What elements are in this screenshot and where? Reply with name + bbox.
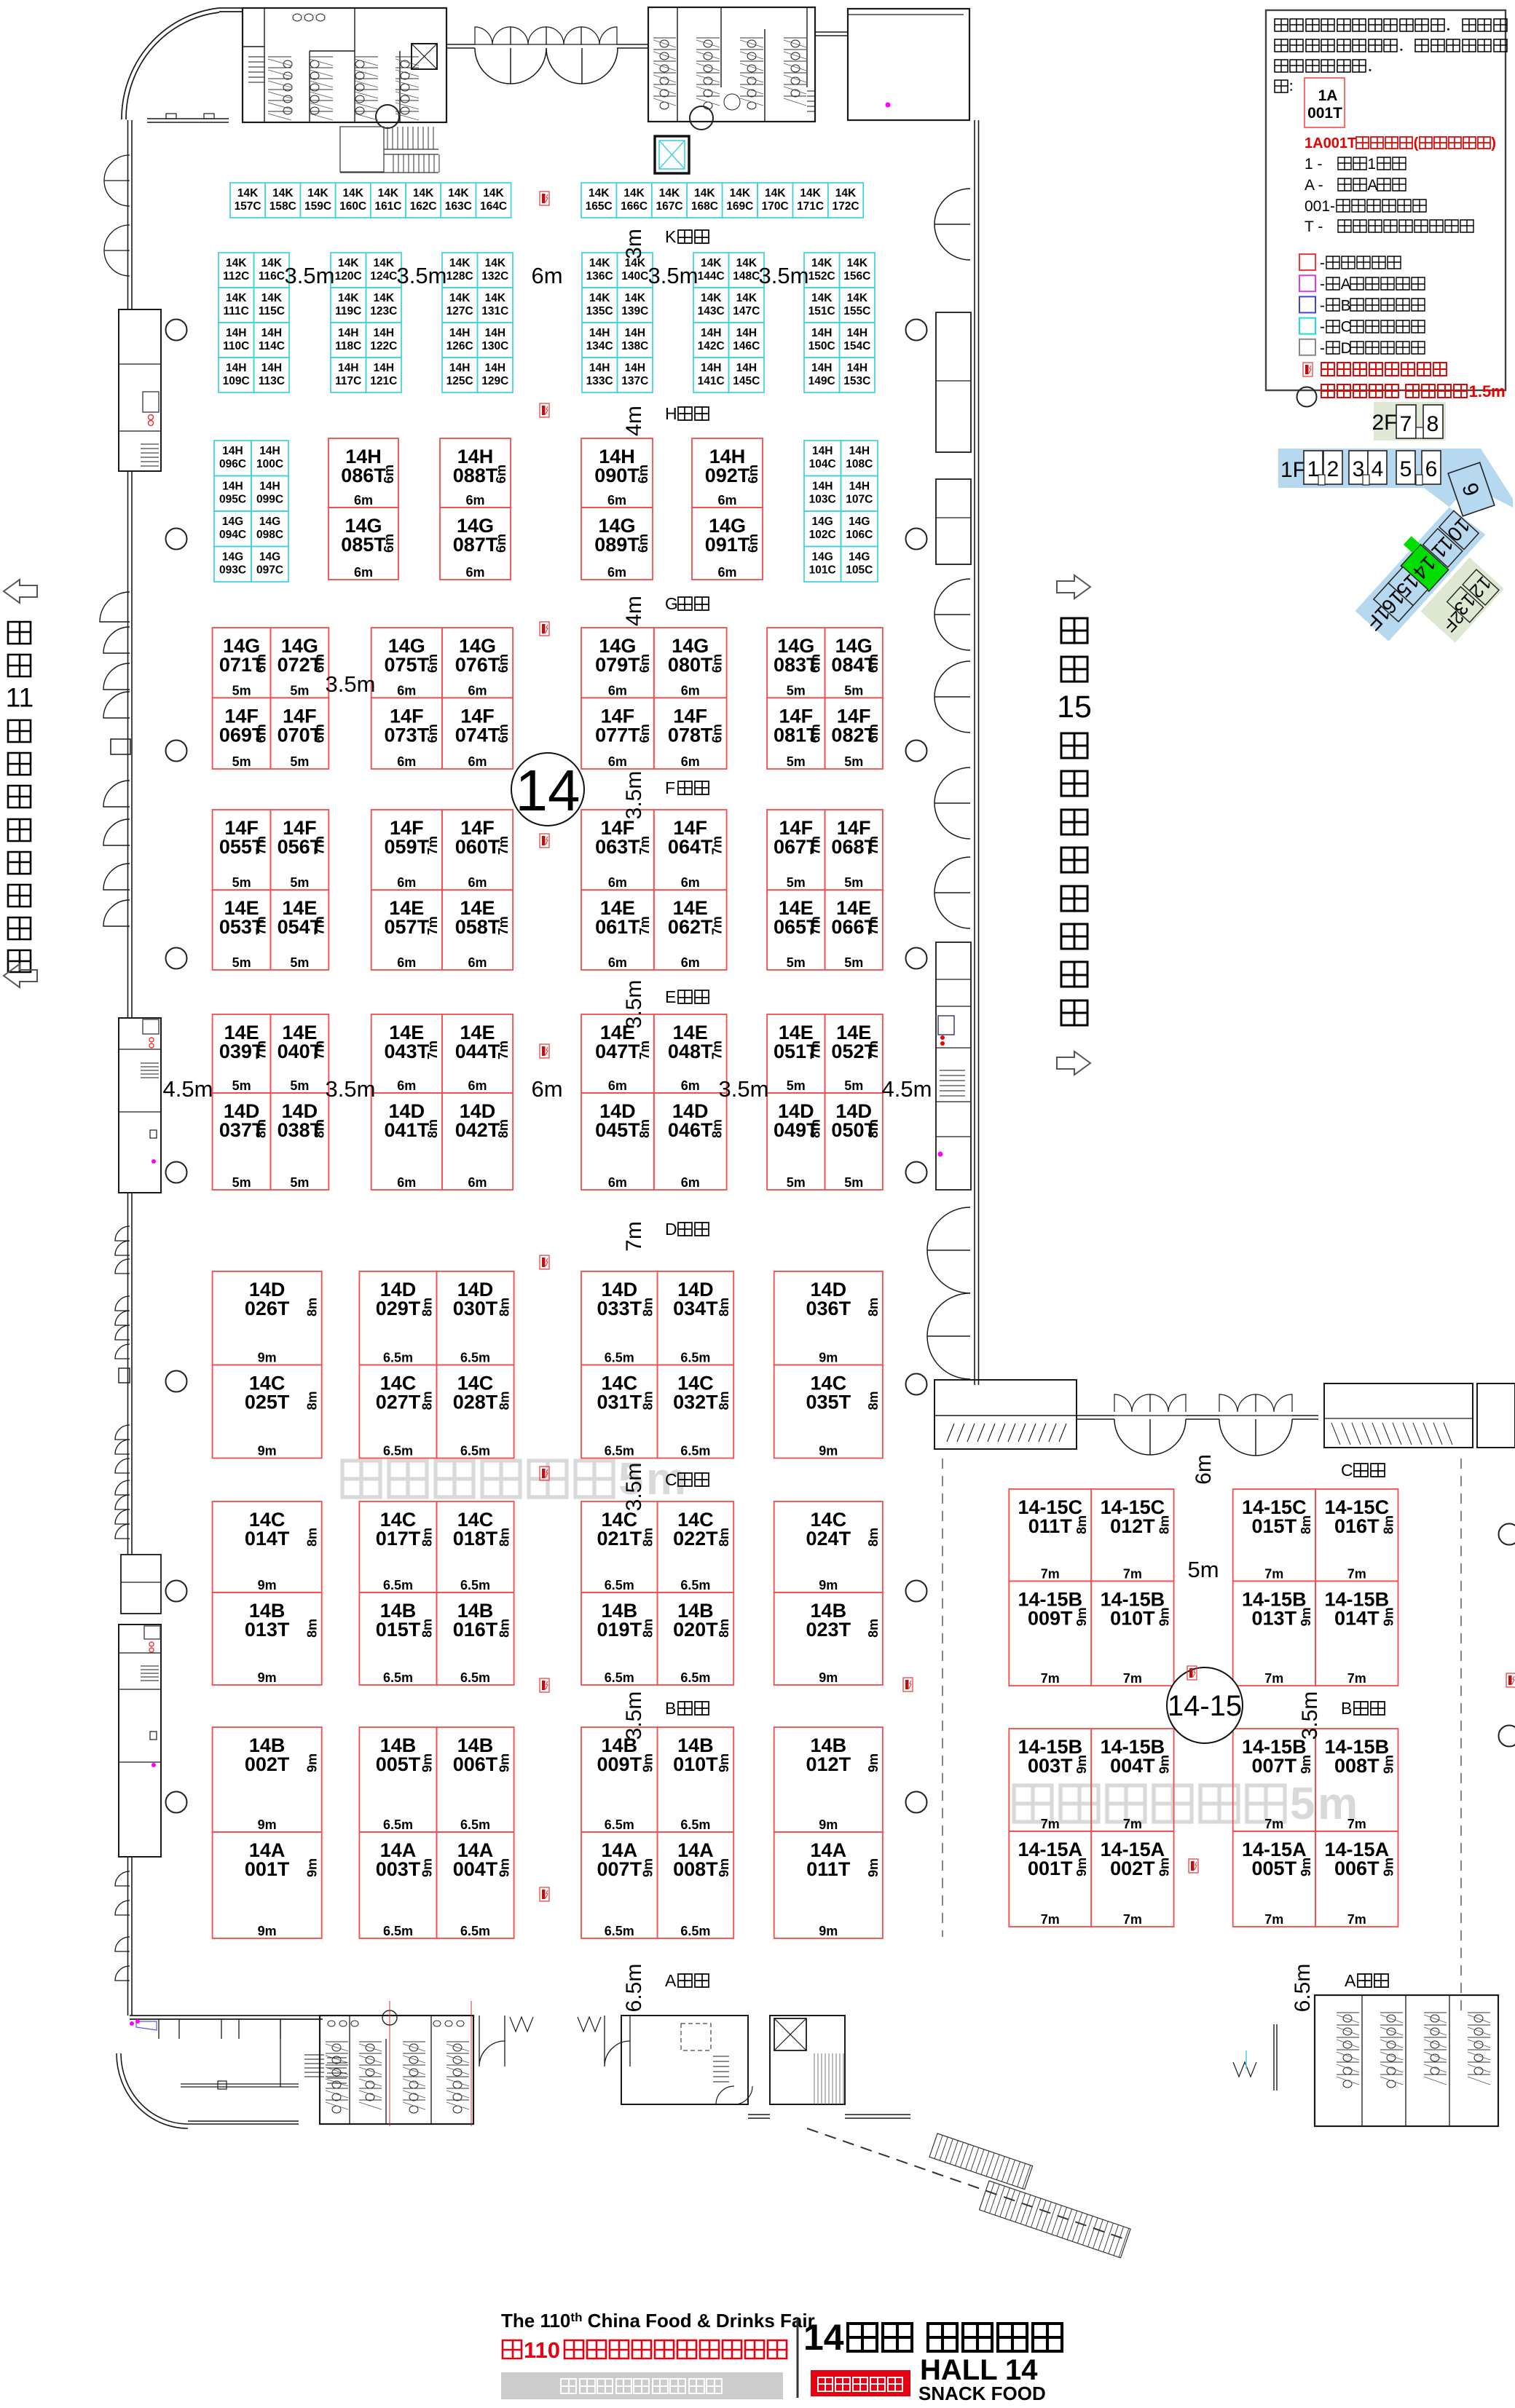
svg-text:5m: 5m <box>232 754 251 769</box>
svg-text:6.5m: 6.5m <box>680 1670 710 1685</box>
svg-text:14H: 14H <box>812 445 833 457</box>
svg-text:015T: 015T <box>376 1619 421 1641</box>
svg-text:): ) <box>1491 135 1496 151</box>
svg-text:3.5m: 3.5m <box>326 1076 376 1102</box>
svg-text:6.5m: 6.5m <box>605 1817 634 1832</box>
svg-text:161C: 161C <box>374 200 401 213</box>
svg-text:011T: 011T <box>1028 1515 1073 1537</box>
svg-text:1A: 1A <box>1318 87 1338 104</box>
svg-text:148C: 148C <box>733 270 760 283</box>
svg-text:150C: 150C <box>808 340 835 352</box>
svg-text:8m: 8m <box>420 1391 435 1410</box>
svg-text:9m: 9m <box>420 1753 435 1772</box>
svg-text:7m: 7m <box>637 916 652 935</box>
svg-text:3.5m: 3.5m <box>622 771 646 820</box>
svg-text:005T: 005T <box>376 1753 421 1775</box>
svg-text:8m: 8m <box>1157 1515 1172 1534</box>
svg-text:035T: 035T <box>806 1391 851 1413</box>
svg-text:7m: 7m <box>1123 1566 1142 1581</box>
svg-text:6.5m: 6.5m <box>605 1924 634 1938</box>
svg-text:6m: 6m <box>866 724 881 743</box>
svg-text:6.5m: 6.5m <box>605 1351 634 1365</box>
svg-text:14K: 14K <box>730 187 751 200</box>
svg-text:096C: 096C <box>219 458 246 470</box>
svg-text:151C: 151C <box>808 305 835 317</box>
svg-text:5: 5 <box>1290 1779 1315 1829</box>
svg-text:6m: 6m <box>681 683 700 698</box>
svg-text:091T: 091T <box>705 534 750 556</box>
svg-text:6m: 6m <box>382 465 396 483</box>
svg-text:8m: 8m <box>808 1119 823 1138</box>
svg-text:9m: 9m <box>1382 1858 1396 1876</box>
svg-text:009T: 009T <box>597 1753 642 1775</box>
svg-text:4: 4 <box>1372 457 1384 481</box>
svg-text:5m: 5m <box>844 955 863 970</box>
svg-text:001T: 001T <box>1307 105 1342 122</box>
svg-text:079T: 079T <box>595 654 640 676</box>
svg-text:6m: 6m <box>254 724 269 743</box>
svg-text:7m: 7m <box>312 916 326 935</box>
svg-text:7m: 7m <box>1264 1671 1283 1686</box>
svg-text:8m: 8m <box>866 1391 881 1410</box>
svg-text:-: - <box>1320 340 1325 357</box>
svg-text:6m: 6m <box>636 465 650 483</box>
svg-text:093C: 093C <box>219 564 246 577</box>
svg-text:7m: 7m <box>637 836 652 855</box>
svg-text:1A001T: 1A001T <box>1305 135 1356 151</box>
svg-text:8m: 8m <box>641 1619 656 1638</box>
svg-text:14G: 14G <box>849 516 870 528</box>
svg-text:001T: 001T <box>1028 1858 1073 1879</box>
svg-text:14K: 14K <box>589 257 610 269</box>
svg-text:004T: 004T <box>453 1858 498 1880</box>
svg-text:100C: 100C <box>256 458 283 470</box>
svg-text:9m: 9m <box>819 1817 838 1832</box>
svg-text:6.5m: 6.5m <box>460 1924 490 1938</box>
svg-text:6m: 6m <box>608 1175 627 1190</box>
svg-text:8m: 8m <box>496 1119 511 1138</box>
svg-text:113C: 113C <box>259 375 285 387</box>
svg-text:106C: 106C <box>846 529 873 541</box>
svg-text:7m: 7m <box>710 836 725 855</box>
svg-text:007T: 007T <box>597 1858 642 1880</box>
svg-text:6m: 6m <box>312 724 326 743</box>
svg-text:6.5m: 6.5m <box>605 1578 634 1592</box>
svg-text:048T: 048T <box>668 1041 713 1062</box>
svg-text:6.5m: 6.5m <box>383 1351 413 1365</box>
svg-text:010T: 010T <box>673 1753 718 1775</box>
svg-text:9m: 9m <box>497 1858 512 1877</box>
svg-text:9m: 9m <box>819 1578 838 1592</box>
svg-text:14H: 14H <box>485 327 505 339</box>
svg-text:6m: 6m <box>468 754 487 769</box>
svg-text:1F: 1F <box>1280 458 1306 482</box>
svg-text:6.5m: 6.5m <box>383 1578 413 1592</box>
svg-text:14H: 14H <box>259 481 280 493</box>
svg-text:167C: 167C <box>656 200 682 213</box>
svg-text:006T: 006T <box>1334 1858 1380 1879</box>
svg-text:6m: 6m <box>496 654 511 673</box>
svg-text:031T: 031T <box>597 1391 642 1413</box>
svg-text:6m: 6m <box>681 1078 700 1093</box>
svg-text:14K: 14K <box>272 187 294 200</box>
svg-text:159C: 159C <box>304 200 331 213</box>
svg-text:5m: 5m <box>787 955 806 970</box>
svg-text:3.5m: 3.5m <box>326 671 376 697</box>
svg-text:6m: 6m <box>746 465 760 483</box>
svg-text:A: A <box>665 1971 677 1990</box>
svg-text:14K: 14K <box>811 292 833 304</box>
svg-text:14K: 14K <box>659 187 680 200</box>
svg-text:7m: 7m <box>637 1041 652 1059</box>
svg-text:8m: 8m <box>710 1119 725 1138</box>
svg-text:5m: 5m <box>290 875 309 890</box>
svg-text:9m: 9m <box>1299 1755 1313 1774</box>
svg-text:5m: 5m <box>232 1175 251 1190</box>
svg-text:118C: 118C <box>335 340 361 352</box>
svg-text:11: 11 <box>6 683 34 713</box>
svg-text:9m: 9m <box>717 1858 731 1877</box>
svg-text:14: 14 <box>516 758 581 823</box>
svg-text:14H: 14H <box>847 362 867 374</box>
svg-text:078T: 078T <box>668 724 713 746</box>
svg-text:001T: 001T <box>245 1858 290 1880</box>
svg-text:132C: 132C <box>481 270 508 283</box>
svg-text:110: 110 <box>524 2337 560 2363</box>
svg-text:7m: 7m <box>622 1221 646 1252</box>
svg-text:117C: 117C <box>335 375 361 387</box>
svg-text:9m: 9m <box>819 1670 838 1685</box>
svg-text:14K: 14K <box>589 187 610 200</box>
svg-text:6m: 6m <box>710 654 725 673</box>
svg-text:6m: 6m <box>468 955 487 970</box>
svg-text:6: 6 <box>1425 457 1438 481</box>
svg-text:023T: 023T <box>806 1619 851 1641</box>
svg-text:7m: 7m <box>1041 1817 1060 1831</box>
svg-text:170C: 170C <box>762 200 789 213</box>
svg-text:016T: 016T <box>453 1619 498 1641</box>
svg-text:014T: 014T <box>245 1528 290 1550</box>
svg-text:129C: 129C <box>481 375 508 387</box>
svg-text:8m: 8m <box>717 1298 731 1316</box>
svg-text:6m: 6m <box>425 724 440 743</box>
svg-text:166C: 166C <box>621 200 648 213</box>
svg-text:6m: 6m <box>681 1175 700 1190</box>
svg-text:14K: 14K <box>237 187 259 200</box>
svg-text:3.5m: 3.5m <box>622 980 646 1029</box>
svg-text:6m: 6m <box>354 493 373 508</box>
svg-text:009T: 009T <box>1028 1607 1073 1629</box>
svg-text:109C: 109C <box>223 375 250 387</box>
svg-text:9m: 9m <box>258 1670 277 1685</box>
svg-text:011T: 011T <box>806 1858 851 1880</box>
svg-text:7m: 7m <box>312 836 326 855</box>
svg-text:9m: 9m <box>1074 1858 1089 1876</box>
svg-text:14G: 14G <box>849 551 870 564</box>
svg-text:3m: 3m <box>622 229 646 259</box>
svg-text:14K: 14K <box>485 257 506 269</box>
svg-text:6.5m: 6.5m <box>680 1578 710 1592</box>
svg-text:152C: 152C <box>808 270 835 283</box>
svg-text:8m: 8m <box>1074 1515 1089 1534</box>
svg-text:7m: 7m <box>808 916 823 935</box>
svg-text:115C: 115C <box>259 305 285 317</box>
svg-text:8m: 8m <box>866 1298 881 1316</box>
svg-text:15: 15 <box>1057 690 1092 725</box>
svg-text:6m: 6m <box>608 875 627 890</box>
svg-text:013T: 013T <box>245 1619 290 1641</box>
svg-text:3.5m: 3.5m <box>759 263 809 288</box>
svg-text:14K: 14K <box>261 292 283 304</box>
svg-text:5m: 5m <box>290 754 309 769</box>
svg-text:134C: 134C <box>586 340 613 352</box>
svg-text:6m: 6m <box>607 565 626 580</box>
svg-text:116C: 116C <box>259 270 285 283</box>
svg-text:14K: 14K <box>485 292 506 304</box>
svg-text:7m: 7m <box>496 836 511 855</box>
svg-text:6m: 6m <box>746 534 760 553</box>
svg-text:B: B <box>1341 297 1351 314</box>
svg-text:156C: 156C <box>843 270 870 283</box>
svg-text:114C: 114C <box>259 340 285 352</box>
svg-text:130C: 130C <box>481 340 508 352</box>
svg-text:5m: 5m <box>232 683 251 698</box>
svg-text:14H: 14H <box>374 362 394 374</box>
svg-text:14K: 14K <box>623 187 645 200</box>
svg-text:6m: 6m <box>681 955 700 970</box>
svg-text:6.5m: 6.5m <box>383 1924 413 1938</box>
svg-text:5m: 5m <box>787 754 806 769</box>
svg-text:029T: 029T <box>376 1298 421 1319</box>
svg-text:108C: 108C <box>846 458 873 470</box>
svg-text:6m: 6m <box>608 754 627 769</box>
svg-text:153C: 153C <box>843 375 870 387</box>
svg-text:026T: 026T <box>245 1298 290 1319</box>
svg-text:8m: 8m <box>305 1619 320 1638</box>
svg-text:14H: 14H <box>849 445 870 457</box>
svg-text:7m: 7m <box>1041 1912 1060 1927</box>
svg-text:14H: 14H <box>812 481 833 493</box>
svg-text:3.5m: 3.5m <box>285 263 335 288</box>
svg-text:092T: 092T <box>705 465 750 486</box>
svg-text:144C: 144C <box>698 270 725 283</box>
svg-text:6m: 6m <box>397 1078 416 1093</box>
svg-text:002T: 002T <box>1110 1858 1155 1879</box>
svg-text:6m: 6m <box>465 565 484 580</box>
svg-text:098C: 098C <box>256 529 283 541</box>
svg-text:4m: 4m <box>622 406 646 436</box>
svg-text:6.5m: 6.5m <box>460 1670 490 1685</box>
svg-text:080T: 080T <box>668 654 713 676</box>
svg-text:147C: 147C <box>733 305 760 317</box>
svg-text:014T: 014T <box>1334 1607 1380 1629</box>
svg-text:6m: 6m <box>397 683 416 698</box>
svg-text:008T: 008T <box>673 1858 718 1880</box>
svg-text:H: H <box>665 404 677 423</box>
svg-text:6m: 6m <box>710 724 725 743</box>
svg-text:14K: 14K <box>483 187 504 200</box>
svg-text:6m: 6m <box>468 683 487 698</box>
svg-text:14K: 14K <box>261 257 283 269</box>
svg-text:090T: 090T <box>594 465 640 486</box>
svg-text:123C: 123C <box>370 305 397 317</box>
svg-text:14H: 14H <box>811 362 832 374</box>
svg-text:122C: 122C <box>370 340 397 352</box>
svg-text:9m: 9m <box>819 1351 838 1365</box>
svg-text:7m: 7m <box>866 916 881 935</box>
svg-text:14G: 14G <box>222 516 243 528</box>
svg-text:5m: 5m <box>844 754 863 769</box>
svg-text:7m: 7m <box>254 1041 269 1059</box>
svg-text:14K: 14K <box>736 257 757 269</box>
svg-text:8m: 8m <box>305 1298 320 1316</box>
svg-text:14K: 14K <box>342 187 363 200</box>
svg-text:4m: 4m <box>622 596 646 626</box>
svg-text:6m: 6m <box>354 565 373 580</box>
svg-text:14K: 14K <box>449 292 471 304</box>
svg-text:003T: 003T <box>376 1858 421 1880</box>
svg-text:7m: 7m <box>425 916 440 935</box>
svg-text:7m: 7m <box>496 1041 511 1059</box>
svg-text:14K: 14K <box>811 257 833 269</box>
svg-text:172C: 172C <box>832 200 859 213</box>
svg-text:7m: 7m <box>1041 1566 1060 1581</box>
svg-text:9m: 9m <box>717 1753 731 1772</box>
svg-text:The 110th China Food & Drinks: The 110th China Food & Drinks Fair <box>501 2310 815 2332</box>
svg-text:6m: 6m <box>637 724 652 743</box>
svg-text:6.5m: 6.5m <box>605 1670 634 1685</box>
svg-text:14H: 14H <box>847 327 867 339</box>
svg-text:126C: 126C <box>446 340 473 352</box>
svg-text:036T: 036T <box>806 1298 851 1319</box>
svg-text:004T: 004T <box>1110 1755 1155 1777</box>
svg-text:099C: 099C <box>256 494 283 506</box>
svg-text:6m: 6m <box>808 654 823 673</box>
svg-text:7m: 7m <box>1123 1817 1142 1831</box>
svg-text:14K: 14K <box>765 187 786 200</box>
svg-text:077T: 077T <box>595 724 640 746</box>
svg-text:B: B <box>1341 1699 1352 1718</box>
svg-text:7m: 7m <box>1347 1566 1366 1581</box>
svg-text:7m: 7m <box>425 836 440 855</box>
svg-text:14K: 14K <box>625 292 646 304</box>
svg-text:7m: 7m <box>254 916 269 935</box>
svg-text:025T: 025T <box>245 1391 290 1413</box>
svg-text:6m: 6m <box>608 1078 627 1093</box>
svg-text:9m: 9m <box>420 1858 435 1877</box>
svg-text:6m: 6m <box>717 565 736 580</box>
svg-text:5m: 5m <box>844 1175 863 1190</box>
svg-text:6.5m: 6.5m <box>680 1924 710 1938</box>
svg-text:14K: 14K <box>226 257 247 269</box>
svg-text:14G: 14G <box>812 516 833 528</box>
svg-text:9m: 9m <box>258 1444 277 1458</box>
svg-text:162C: 162C <box>410 200 437 213</box>
svg-text:062T: 062T <box>668 916 713 938</box>
svg-text:HALL 14: HALL 14 <box>920 2354 1038 2386</box>
svg-text:5m: 5m <box>290 1078 309 1093</box>
svg-text:1.5m: 1.5m <box>1469 382 1506 400</box>
svg-text:017T: 017T <box>376 1528 421 1550</box>
svg-text:018T: 018T <box>453 1528 498 1550</box>
svg-text:3.5m: 3.5m <box>1298 1691 1322 1740</box>
svg-text:9m: 9m <box>258 1817 277 1832</box>
svg-text:105C: 105C <box>846 564 873 577</box>
svg-text:1: 1 <box>1307 457 1320 481</box>
svg-text:9m: 9m <box>497 1753 512 1772</box>
svg-text:5m: 5m <box>787 683 806 698</box>
svg-text:015T: 015T <box>1252 1515 1297 1537</box>
svg-text:6m: 6m <box>637 654 652 673</box>
svg-text:8m: 8m <box>717 1391 731 1410</box>
svg-text:F: F <box>665 778 675 797</box>
svg-text:14K: 14K <box>448 187 469 200</box>
svg-text:6.5m: 6.5m <box>460 1817 490 1832</box>
svg-text:9m: 9m <box>1299 1607 1313 1626</box>
svg-text:016T: 016T <box>1334 1515 1380 1537</box>
svg-text:012T: 012T <box>1110 1515 1155 1537</box>
svg-text:8m: 8m <box>641 1298 656 1316</box>
svg-text:155C: 155C <box>843 305 870 317</box>
svg-text:142C: 142C <box>698 340 725 352</box>
svg-text:128C: 128C <box>446 270 473 283</box>
svg-text:14H: 14H <box>485 362 505 374</box>
svg-text:057T: 057T <box>385 916 430 938</box>
svg-text:14H: 14H <box>449 327 470 339</box>
svg-text:103C: 103C <box>809 494 836 506</box>
svg-text:8m: 8m <box>641 1391 656 1410</box>
svg-text:8m: 8m <box>497 1391 512 1410</box>
svg-text:5m: 5m <box>290 955 309 970</box>
svg-text:154C: 154C <box>843 340 870 352</box>
svg-text:7m: 7m <box>710 916 725 935</box>
svg-text:-: - <box>1320 297 1325 314</box>
svg-text:125C: 125C <box>446 375 473 387</box>
svg-text:8m: 8m <box>1299 1515 1313 1534</box>
svg-text:14K: 14K <box>374 292 395 304</box>
svg-text:9m: 9m <box>641 1753 656 1772</box>
svg-text:145C: 145C <box>733 375 760 387</box>
svg-text:019T: 019T <box>597 1619 642 1641</box>
svg-text:5m: 5m <box>844 1078 863 1093</box>
svg-text:6.5m: 6.5m <box>383 1670 413 1685</box>
svg-text:9m: 9m <box>866 1753 881 1772</box>
svg-text:064T: 064T <box>668 836 713 858</box>
svg-text:6m: 6m <box>531 1076 562 1102</box>
svg-text:121C: 121C <box>370 375 397 387</box>
svg-text:007T: 007T <box>1252 1755 1297 1777</box>
svg-text:163C: 163C <box>445 200 472 213</box>
svg-text:063T: 063T <box>595 836 640 858</box>
svg-text:4.5m: 4.5m <box>882 1076 932 1102</box>
svg-text:A -: A - <box>1305 177 1323 194</box>
svg-text:2F: 2F <box>1372 411 1397 435</box>
svg-text:9m: 9m <box>1074 1607 1089 1626</box>
svg-text:9m: 9m <box>1382 1755 1396 1774</box>
svg-text:060T: 060T <box>455 836 500 858</box>
svg-text:8m: 8m <box>641 1528 656 1547</box>
svg-text:14K: 14K <box>307 187 328 200</box>
svg-text:K: K <box>665 227 677 246</box>
svg-text:074T: 074T <box>455 724 500 746</box>
svg-text:14H: 14H <box>222 481 243 493</box>
svg-text:112C: 112C <box>223 270 249 283</box>
svg-text:8m: 8m <box>866 1528 881 1547</box>
svg-text:14H: 14H <box>226 327 246 339</box>
svg-text:6m: 6m <box>312 654 326 673</box>
svg-text:1: 1 <box>1367 156 1376 173</box>
svg-text:14K: 14K <box>736 292 757 304</box>
